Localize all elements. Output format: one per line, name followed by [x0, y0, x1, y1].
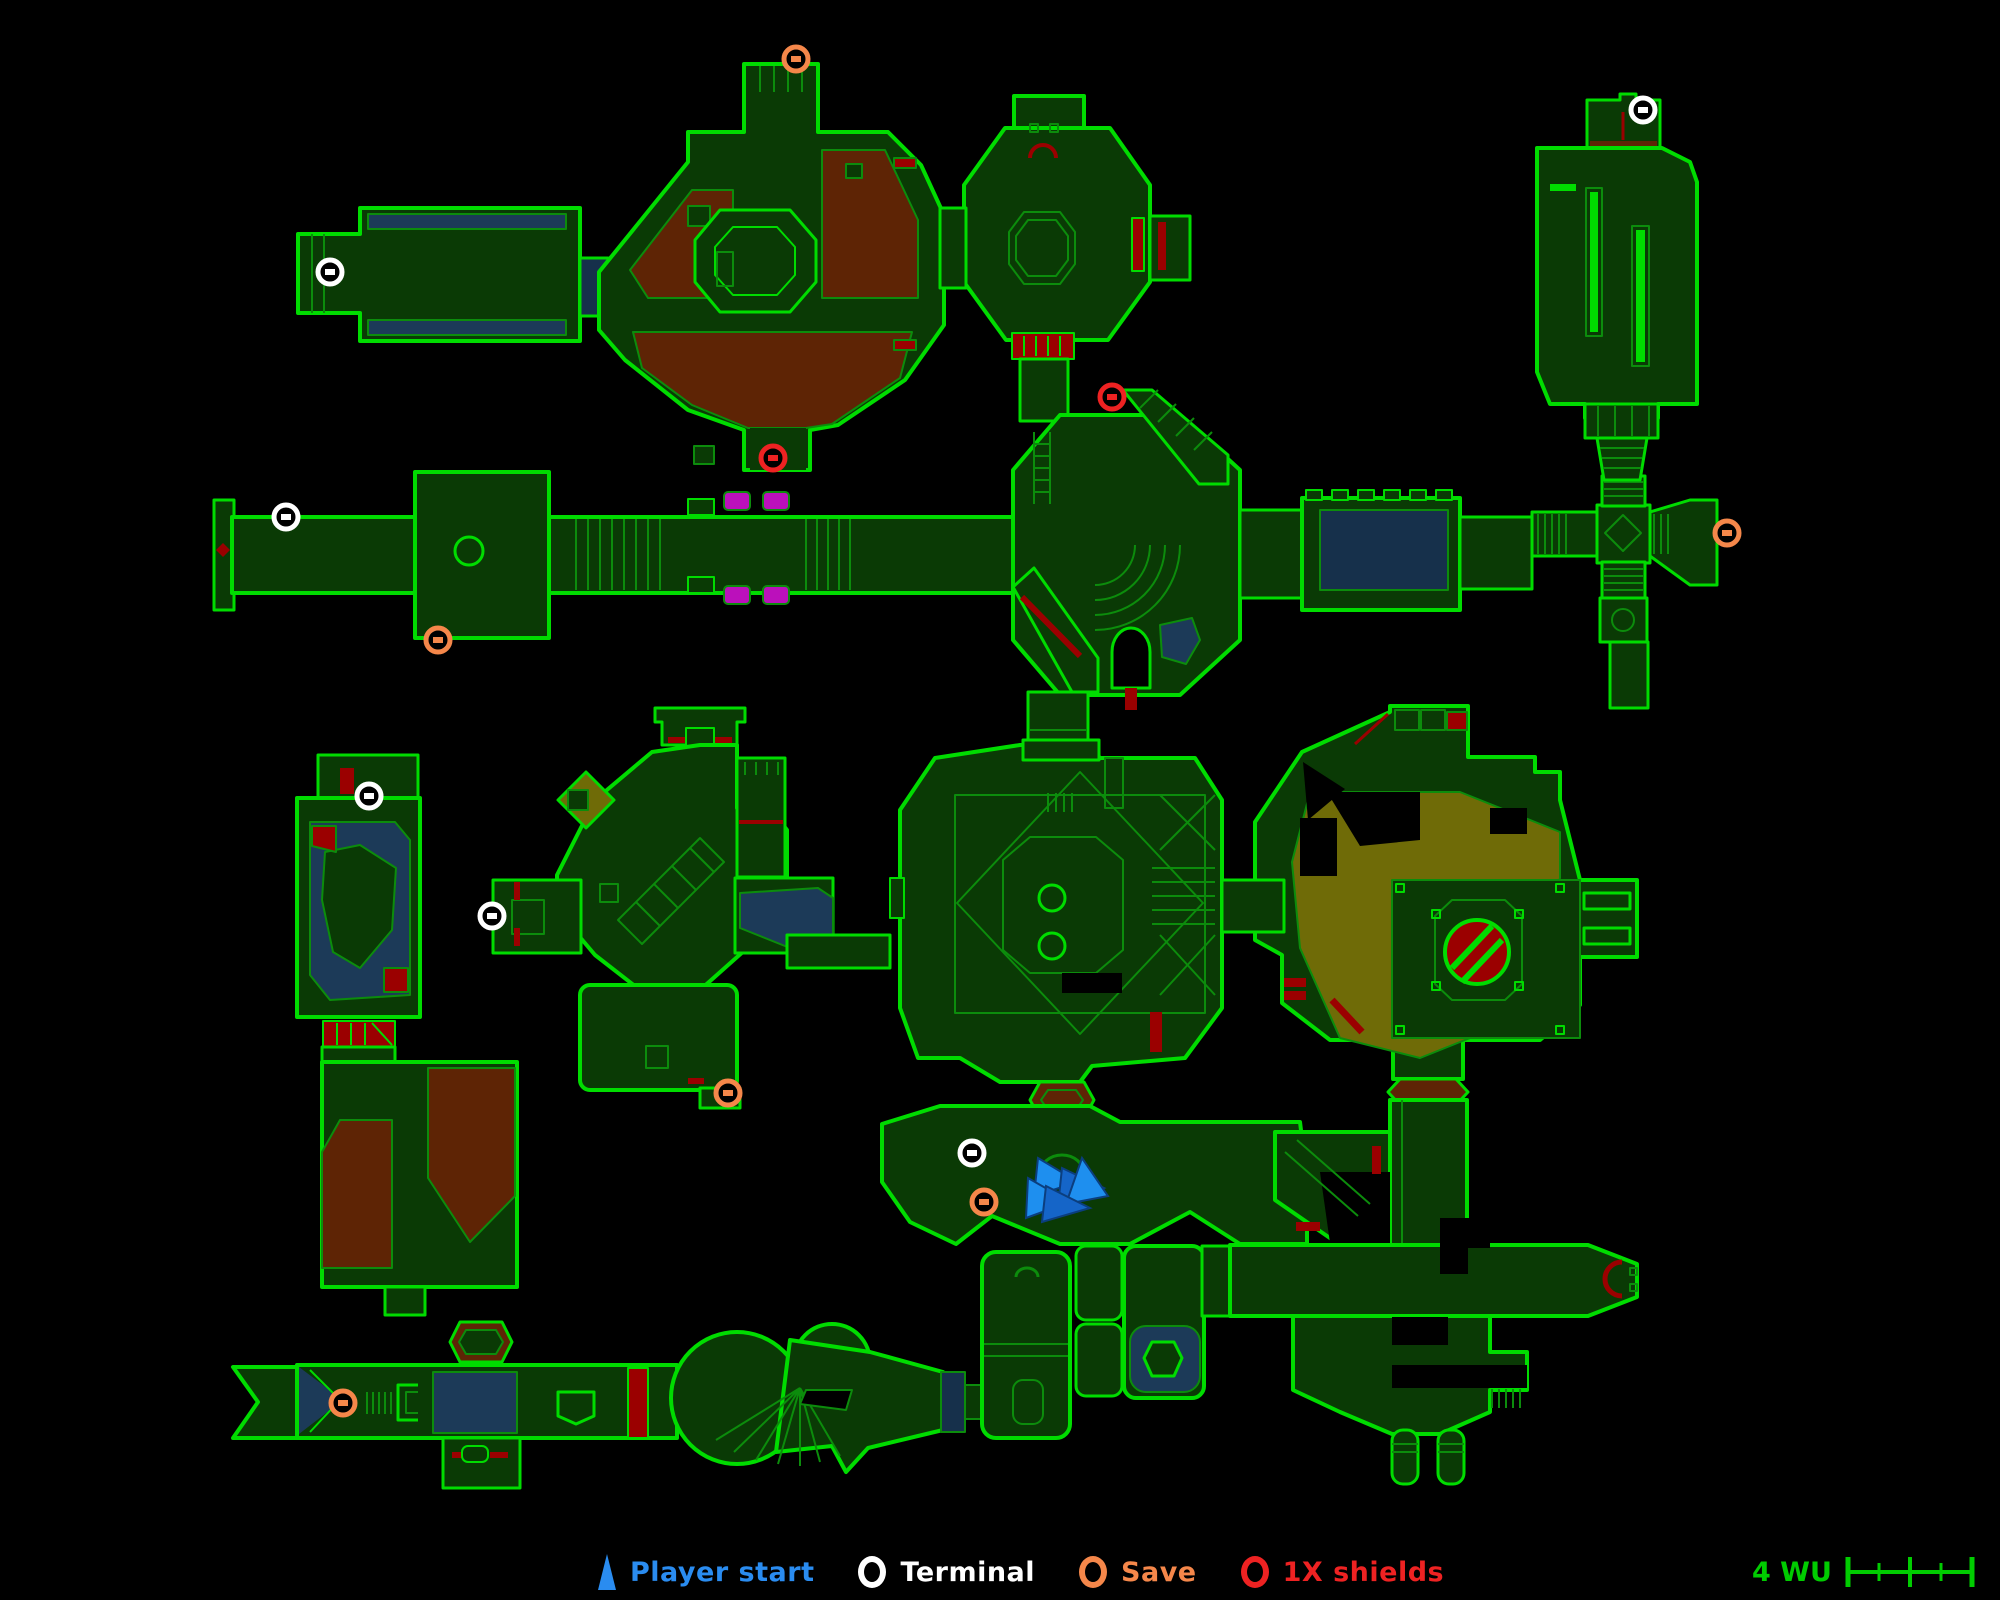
terminal-marker-dash — [325, 269, 335, 275]
save-icon — [1079, 1556, 1107, 1588]
map-shape — [1320, 1172, 1390, 1243]
br-long-arm — [1230, 1245, 1637, 1316]
stairs-red — [1012, 333, 1074, 359]
map-shape — [1447, 712, 1467, 730]
map-shape — [514, 928, 520, 946]
map-shape — [1395, 710, 1419, 730]
save-marker-dash — [791, 56, 801, 62]
map-shape — [385, 1287, 425, 1315]
map-shape — [1300, 818, 1337, 876]
map-shape — [1602, 562, 1645, 600]
brown-floor — [633, 332, 912, 428]
legend-item-player-start: Player start — [598, 1554, 814, 1590]
map-shape — [384, 968, 408, 992]
map-shape — [688, 499, 714, 515]
map-shape — [1392, 1365, 1527, 1388]
magenta-pad — [724, 586, 750, 604]
map-shape — [1600, 598, 1647, 642]
map-shape — [1438, 1430, 1464, 1484]
magenta-pad — [724, 492, 750, 510]
player-start-icon — [598, 1554, 616, 1590]
terminal-marker-dash — [967, 1150, 977, 1156]
magenta-pad — [763, 492, 789, 510]
scale-label: 4 WU — [1752, 1557, 1832, 1588]
map-shape — [890, 878, 904, 918]
map-shape — [688, 577, 714, 593]
map-shape — [1358, 490, 1374, 500]
map-shape — [776, 1340, 943, 1472]
map-shape — [1410, 490, 1426, 500]
shield-marker-dash — [768, 455, 778, 461]
map-shape — [1372, 1146, 1381, 1174]
map-shape — [1150, 216, 1190, 280]
map-shape — [455, 537, 483, 565]
terminal-icon — [858, 1556, 886, 1588]
map-shape — [1284, 978, 1306, 987]
map-shape — [737, 758, 785, 877]
map-shape — [739, 820, 783, 824]
map-shape — [1222, 880, 1284, 932]
save-marker-dash — [723, 1090, 733, 1096]
map-shape — [941, 1372, 965, 1432]
save-marker-dash — [338, 1400, 348, 1406]
map-shape — [1585, 404, 1658, 438]
map-shape — [1144, 1342, 1182, 1376]
map-shape — [1392, 1317, 1448, 1345]
legend-item-terminal: Terminal — [858, 1556, 1035, 1588]
map-shape — [1284, 991, 1306, 1000]
save-marker-dash — [979, 1199, 989, 1205]
map-shape — [568, 790, 588, 810]
map-shape — [1384, 490, 1400, 500]
dome-arch — [1112, 628, 1150, 688]
legend-label: Save — [1121, 1557, 1197, 1588]
scale-ruler-icon — [1844, 1550, 1980, 1594]
map-shape — [1332, 490, 1348, 500]
map-shape — [688, 206, 710, 226]
map-shape — [514, 882, 520, 900]
legend: Player startTerminalSave1X shields — [598, 1545, 1444, 1599]
navy-room — [433, 1372, 517, 1433]
map-shape — [694, 446, 714, 464]
legend-label: 1X shields — [1283, 1557, 1445, 1588]
map-shape — [688, 1078, 704, 1084]
hatched-circle — [1445, 920, 1509, 984]
terminal-marker-dash — [281, 514, 291, 520]
map-scale: 4 WU — [1752, 1545, 1980, 1599]
navy-bar — [368, 320, 566, 335]
map-shape — [787, 935, 890, 968]
bl-west-tip — [233, 1367, 297, 1438]
map-shape — [1436, 490, 1452, 500]
map-shape — [1062, 973, 1122, 993]
map-shape — [1240, 510, 1302, 598]
map-shape — [1590, 192, 1598, 332]
save-marker-dash — [433, 637, 443, 643]
shield-marker-dash — [1107, 394, 1117, 400]
map-shape — [1020, 359, 1068, 421]
map-shape — [1584, 893, 1630, 909]
octagon-ring — [695, 210, 816, 312]
cl-south-lobe — [580, 985, 737, 1090]
map-shape — [1610, 642, 1648, 708]
map-shape — [1306, 490, 1322, 500]
magenta-pad — [763, 586, 789, 604]
map-shape — [1320, 510, 1448, 590]
legend-label: Player start — [630, 1557, 814, 1588]
map-shape — [628, 1368, 648, 1438]
legend-item-save: Save — [1079, 1556, 1197, 1588]
map-shape — [846, 164, 862, 178]
map-shape — [1158, 222, 1166, 270]
octagon-room — [964, 128, 1150, 340]
legend-label: Terminal — [900, 1557, 1035, 1588]
map-shape — [1076, 1246, 1122, 1320]
map-shape — [459, 1330, 503, 1354]
map-shape — [1636, 230, 1645, 362]
map-shape — [1584, 928, 1630, 944]
map-shape — [1392, 1430, 1418, 1484]
map-shape — [490, 1452, 508, 1458]
level-map[interactable] — [0, 0, 2000, 1600]
map-shape — [1076, 1324, 1122, 1396]
map-shape — [894, 340, 916, 350]
map-shape — [1421, 710, 1445, 730]
map-shape — [1460, 517, 1532, 589]
save-marker-dash — [1722, 530, 1732, 536]
map-shape — [1150, 1012, 1162, 1052]
navy-bar — [368, 214, 566, 229]
map-canvas — [0, 0, 2000, 1600]
map-shape — [1550, 184, 1576, 191]
terminal-marker-dash — [1638, 107, 1648, 113]
terminal-marker-dash — [487, 913, 497, 919]
corridor-west — [232, 517, 1013, 593]
map-shape — [1532, 512, 1597, 556]
map-shape — [1296, 1222, 1320, 1231]
map-shape — [1440, 1248, 1468, 1274]
map-shape — [340, 768, 354, 794]
map-shape — [322, 1120, 392, 1268]
map-shape — [1023, 740, 1099, 760]
map-shape — [894, 158, 916, 168]
stairs-red — [323, 1021, 395, 1047]
map-shape — [1490, 808, 1527, 834]
1x-shields-icon — [1241, 1556, 1269, 1588]
map-shape — [940, 208, 966, 288]
map-shape — [1440, 1218, 1490, 1248]
legend-item-1x-shields: 1X shields — [1241, 1556, 1445, 1588]
terminal-marker-dash — [364, 793, 374, 799]
map-shape — [462, 1446, 488, 1462]
map-shape — [1132, 218, 1144, 271]
map-shape — [1125, 688, 1137, 710]
